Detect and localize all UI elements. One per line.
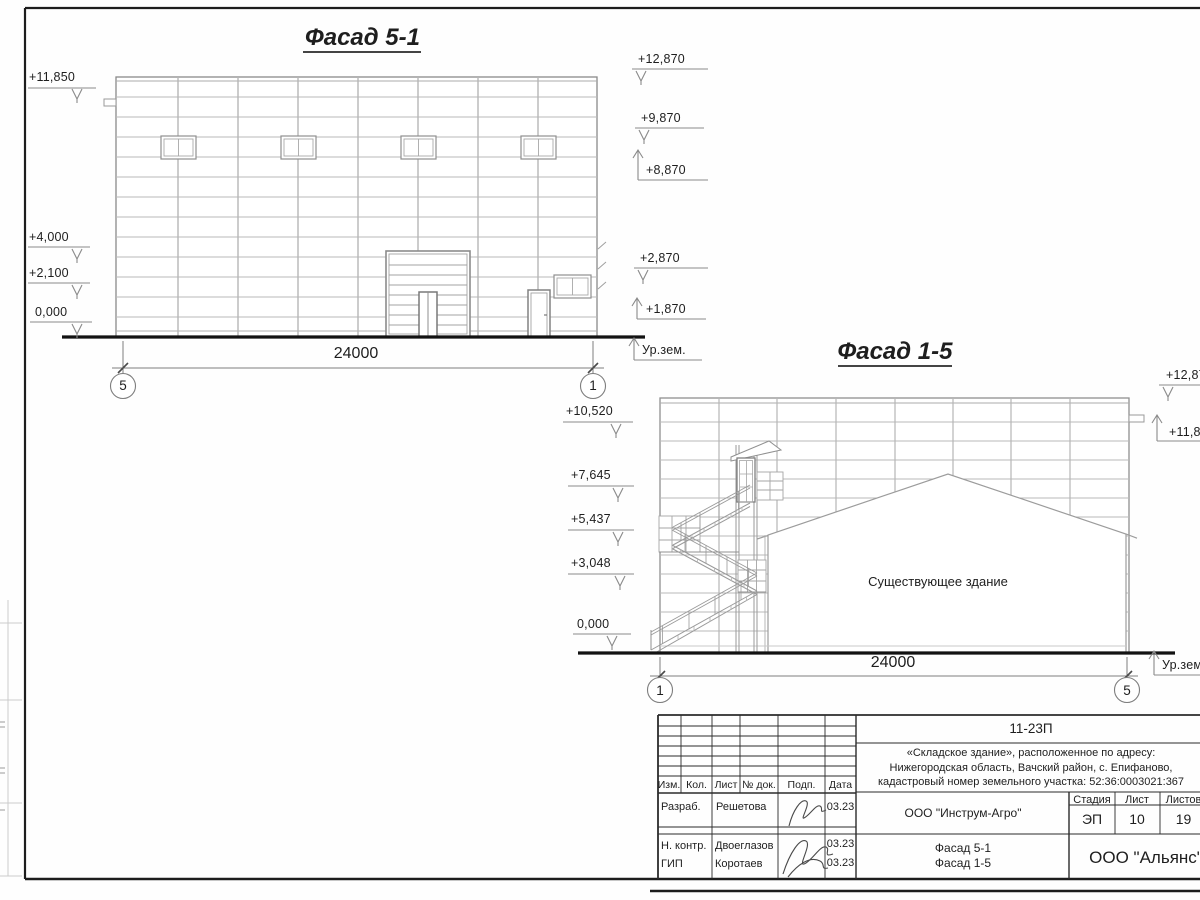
facade-51-title: Фасад 5-1 <box>290 24 435 52</box>
rev-col-header: Изм. <box>657 779 681 791</box>
level-label: +3,048 <box>571 556 611 570</box>
entrance-door <box>528 290 550 337</box>
level-label: +5,437 <box>571 512 611 526</box>
sheets-header: Листов <box>1161 794 1200 806</box>
stage-value: ЭП <box>1070 811 1114 827</box>
level-label: +2,870 <box>640 251 680 265</box>
level-label: +7,645 <box>571 468 611 482</box>
axis-bubble-label: 1 <box>647 683 673 698</box>
level-label: +8,870 <box>646 163 686 177</box>
level-label: +12,870 <box>1166 368 1200 382</box>
dimension-label: 24000 <box>306 345 406 363</box>
level-label: 0,000 <box>35 305 67 319</box>
sig-date: 03.23 <box>825 801 856 813</box>
sheets-total: 19 <box>1161 811 1200 827</box>
downspout-ticks <box>598 242 606 289</box>
level-label: +11,850 <box>29 70 75 84</box>
rev-col-header: Подп. <box>778 779 825 791</box>
left-edge-fragment <box>0 600 22 876</box>
rev-col-header: Лист <box>712 779 740 791</box>
sig-role: ГИП <box>661 858 683 870</box>
sig-date: 03.23 <box>825 838 856 850</box>
doc-number: 11-23П <box>856 721 1200 736</box>
project-address-line: Нижегородская область, Вачский район, с.… <box>860 761 1200 776</box>
sig-role: Разраб. <box>661 801 701 813</box>
dimension-label: 24000 <box>843 654 943 672</box>
axis-bubble-label: 5 <box>110 378 136 393</box>
sig-name: Коротаев <box>715 858 763 870</box>
level-label: +2,100 <box>29 266 69 280</box>
rev-col-header: № док. <box>740 779 778 791</box>
stage-header: Стадия <box>1070 794 1114 806</box>
sig-role: Н. контр. <box>661 840 706 852</box>
sheet-number: 10 <box>1115 811 1159 827</box>
facade-15-title: Фасад 1-5 <box>825 338 965 366</box>
level-label: +1,870 <box>646 302 686 316</box>
project-address-line: «Складское здание», расположенное по адр… <box>860 746 1200 761</box>
wall-protrusion <box>1129 415 1144 422</box>
signature-reshetova <box>789 801 826 826</box>
wall-protrusion <box>104 99 116 106</box>
level-label: +9,870 <box>641 111 681 125</box>
stair-exit-door <box>737 458 755 502</box>
project-address-line: кадастровый номер земельного участка: 52… <box>860 775 1200 790</box>
level-label: +11,850 <box>1169 425 1200 439</box>
level-label: 0,000 <box>577 617 609 631</box>
level-label: +12,870 <box>638 52 685 66</box>
rev-col-header: Дата <box>825 779 856 791</box>
sheet-header: Лист <box>1115 794 1159 806</box>
sig-date: 03.23 <box>825 857 856 869</box>
client-name: ООО "Инструм-Агро" <box>858 806 1068 820</box>
ground-level-label: Ур.зем. <box>642 343 686 357</box>
sig-name: Решетова <box>716 801 766 813</box>
sig-name: Двоеглазов <box>715 840 773 852</box>
level-label: +10,520 <box>566 404 613 418</box>
sheet-title-line: Фасад 1-5 <box>858 856 1068 870</box>
small-window <box>554 275 591 298</box>
organization-name: ООО "Альянс" <box>1070 848 1200 868</box>
sheet-title-line: Фасад 5-1 <box>858 841 1068 855</box>
level-label: +4,000 <box>29 230 69 244</box>
ground-level-label: Ур.зем. <box>1162 658 1200 672</box>
axis-bubble-label: 1 <box>580 378 606 393</box>
drawing-sheet: Фасад 5-1 Фасад 1-5 +11,850 +4,000 +2,10… <box>0 0 1200 900</box>
rev-col-header: Кол. <box>681 779 712 791</box>
sectional-gate <box>386 251 470 337</box>
existing-building-label: Существующее здание <box>865 574 1011 589</box>
axis-bubble-label: 5 <box>1114 683 1140 698</box>
